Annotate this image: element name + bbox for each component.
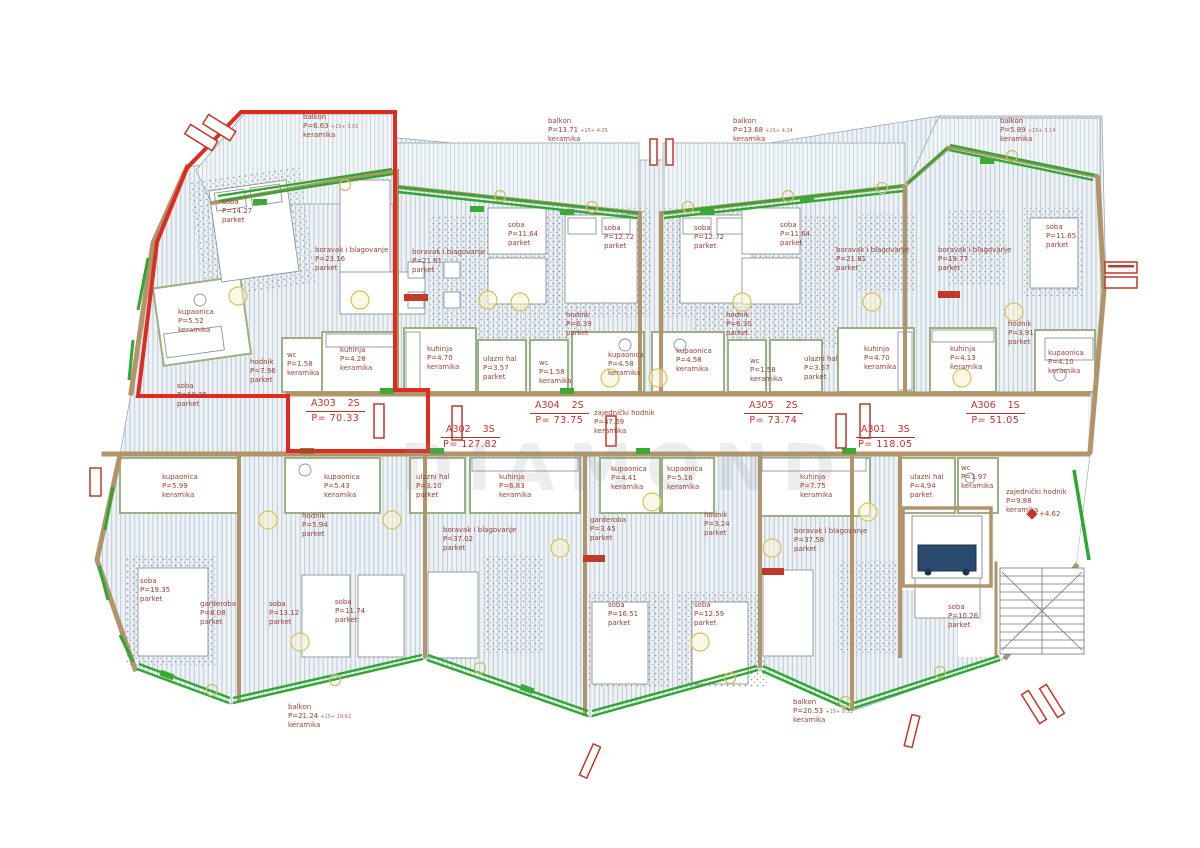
floor-plan-canvas: DIAMOND +4.62 sobaP=14.27parketboravak i… xyxy=(0,0,1200,848)
floor-plan-drawing xyxy=(0,0,1200,848)
elevation-marker: +4.62 xyxy=(1028,510,1060,518)
elevation-value: +4.62 xyxy=(1039,510,1060,518)
staircase xyxy=(1000,568,1084,654)
elevator xyxy=(912,516,982,578)
elevation-diamond-icon xyxy=(1026,508,1037,519)
watermark: DIAMOND xyxy=(400,432,820,506)
